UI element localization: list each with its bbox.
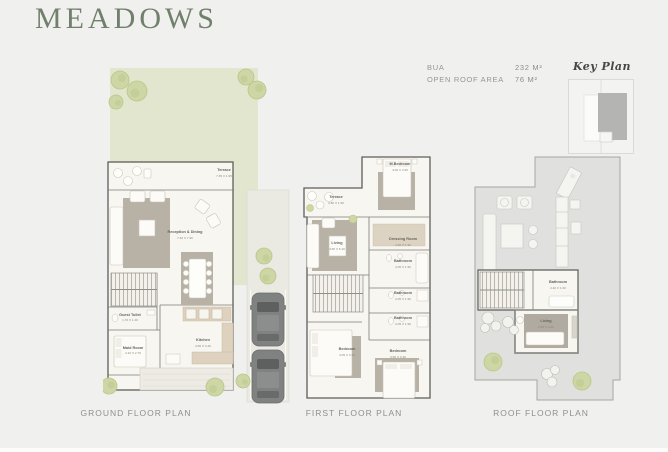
room-dims: 2.40 X 1.60 bbox=[550, 286, 566, 290]
first-floor-plan-drawing: M.Bedroom 4.00 X 3.95 Terrace 2.80 X 1.5… bbox=[303, 150, 436, 412]
tree-icon bbox=[109, 95, 123, 109]
brochure-page: MEADOWS BUA 232 M² OPEN ROOF AREA 76 M² … bbox=[0, 0, 668, 452]
staircase bbox=[313, 275, 363, 312]
room-label: Terrace bbox=[329, 195, 342, 199]
key-plan-entry bbox=[600, 132, 612, 142]
key-plan-title: Key Plan bbox=[570, 60, 634, 73]
roof-floor-plan-drawing: Bathroom 2.40 X 1.60 Living 3.55 X 3.40 bbox=[458, 150, 628, 408]
tree-icon bbox=[248, 81, 266, 99]
room-dims: 2.05 X 1.90 bbox=[395, 322, 411, 326]
room-dims: 4.00 X 3.95 bbox=[392, 168, 408, 172]
room-dims: 3.60 X 3.40 bbox=[195, 344, 211, 348]
room-label: Bedroom bbox=[390, 349, 407, 353]
room-label: Bathroom bbox=[549, 280, 568, 284]
room-label: Bathroom bbox=[394, 316, 413, 320]
room-dims: 2.10 X 2.70 bbox=[125, 351, 141, 355]
room-dims: 1.70 X 1.40 bbox=[122, 318, 138, 322]
tree-icon bbox=[256, 248, 272, 264]
room-dims: 2.80 X 1.50 bbox=[328, 201, 344, 205]
tree-icon bbox=[127, 81, 147, 101]
tree-icon bbox=[573, 372, 591, 390]
first-floor-plan-title: FIRST FLOOR PLAN bbox=[306, 408, 403, 418]
room-dims: 3.80 X 5.10 bbox=[329, 247, 345, 251]
tree-icon bbox=[111, 71, 129, 89]
room-label: Dressing Room bbox=[389, 237, 418, 241]
tree-icon bbox=[260, 268, 276, 284]
area-specs: BUA 232 M² OPEN ROOF AREA 76 M² bbox=[427, 61, 543, 85]
bua-label: BUA bbox=[427, 63, 515, 72]
bua-value: 232 M² bbox=[515, 63, 543, 72]
tree-icon bbox=[484, 353, 502, 371]
room-label: Reception & Dining bbox=[167, 230, 203, 234]
open-roof-label: OPEN ROOF AREA bbox=[427, 75, 515, 84]
car-icon bbox=[250, 350, 286, 403]
room-label: Kitchen bbox=[196, 338, 211, 342]
room-dims: 2.05 X 1.90 bbox=[395, 265, 411, 269]
open-roof-row: OPEN ROOF AREA 76 M² bbox=[427, 73, 543, 85]
room-label: Terrace bbox=[217, 168, 230, 172]
room-dims: 3.55 X 3.40 bbox=[538, 325, 554, 329]
tree-icon bbox=[103, 378, 117, 394]
page-bottom-edge bbox=[0, 448, 668, 452]
room-label: Bathroom bbox=[394, 291, 413, 295]
bua-row: BUA 232 M² bbox=[427, 61, 543, 73]
room-label: Bathroom bbox=[394, 259, 413, 263]
room-label: Guest Toilet bbox=[119, 313, 141, 317]
bed bbox=[377, 360, 422, 398]
tree-icon bbox=[206, 378, 224, 396]
open-roof-value: 76 M² bbox=[515, 75, 538, 84]
page-title: MEADOWS bbox=[35, 2, 218, 36]
staircase bbox=[480, 272, 524, 308]
room-label: Bedroom bbox=[339, 347, 356, 351]
car-icon bbox=[250, 293, 286, 346]
room-label: Living bbox=[540, 319, 552, 323]
room-dims: 2.60 X 1.90 bbox=[395, 243, 411, 247]
room-label: M.Bedroom bbox=[390, 162, 412, 166]
tree-icon bbox=[236, 374, 250, 388]
room-dims: 3.60 X 3.40 bbox=[390, 355, 406, 359]
ground-floor-plan-drawing: Terrace 7.35 X 1.95 Reception & Dining 7… bbox=[103, 60, 290, 405]
bathtub bbox=[549, 296, 574, 307]
room-label: Maid Room bbox=[123, 346, 144, 350]
key-plan-diagram bbox=[568, 79, 634, 154]
room-dims: 7.35 X 1.95 bbox=[216, 174, 232, 178]
staircase bbox=[111, 273, 157, 306]
room-dims: 2.05 X 1.90 bbox=[395, 297, 411, 301]
roof-floor-plan-title: ROOF FLOOR PLAN bbox=[493, 408, 589, 418]
room-label: Living bbox=[331, 241, 343, 245]
room-dims: 4.05 X 3.40 bbox=[339, 353, 355, 357]
ground-floor-plan-title: GROUND FLOOR PLAN bbox=[81, 408, 192, 418]
room-dims: 7.40 X 7.90 bbox=[177, 236, 193, 240]
